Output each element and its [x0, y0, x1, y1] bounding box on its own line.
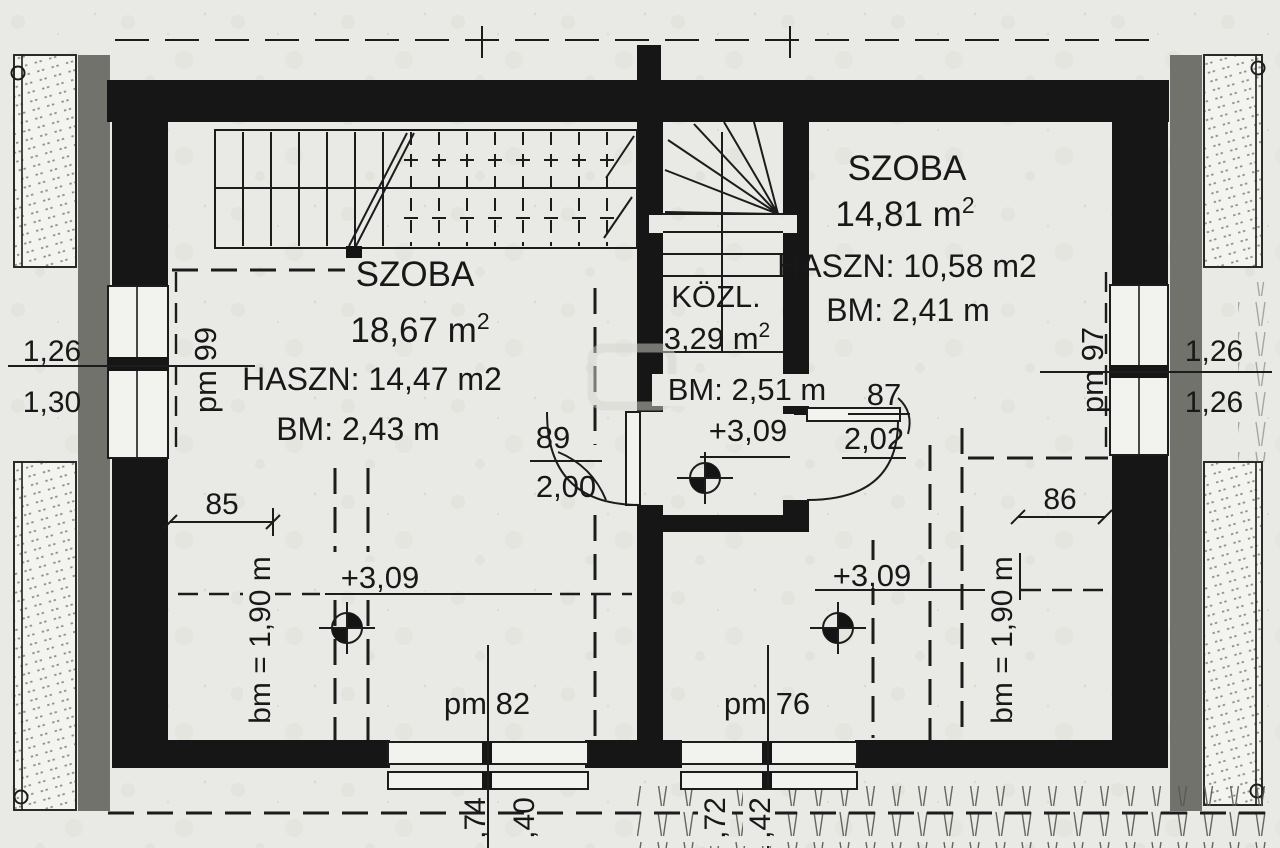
left-door-width: 89	[536, 420, 570, 455]
right-window-bottom-label: pm 76	[724, 686, 810, 721]
floor-plan-drawing: SZOBA 18,67 m2 HASZN: 14,47 m2 BM: 2,43 …	[0, 0, 1280, 848]
corridor-area: 3,29 m2	[664, 319, 770, 356]
right-room-usable-area: HASZN: 10,58 m2	[777, 248, 1037, 284]
corridor-level: +3,09	[709, 413, 787, 448]
right-door-width: 87	[867, 377, 901, 412]
left-window-bottom-label: pm 82	[444, 686, 530, 721]
right-window-side-label: pm 97	[1075, 327, 1110, 413]
left-window-side-label: pm 99	[188, 327, 223, 413]
right-room-name: SZOBA	[848, 149, 967, 188]
window-left-pm99	[108, 286, 168, 458]
left-eave-dim-a: ,74	[459, 797, 492, 839]
left-room-area: 18,67 m2	[350, 308, 489, 350]
left-facade-dim-bottom: 1,30	[23, 386, 81, 419]
window-right-pm97	[1110, 285, 1168, 455]
corridor-name: KÖZL.	[671, 279, 761, 314]
corridor-left-wall	[637, 122, 663, 412]
landing-bottom-wall	[637, 515, 807, 532]
left-room-height: BM: 2,43 m	[276, 411, 440, 447]
right-facade-dim-bottom: 1,26	[1185, 386, 1243, 419]
corridor-height: BM: 2,51 m	[668, 372, 827, 407]
right-room-height: BM: 2,41 m	[826, 292, 990, 328]
left-eave-dim-b: ,40	[508, 797, 541, 839]
left-facade-dim-top: 1,26	[23, 335, 81, 368]
corridor-left-wall	[637, 505, 663, 740]
chimney-stub	[637, 45, 661, 81]
right-facade-dim-top: 1,26	[1185, 335, 1243, 368]
handrail-notch	[649, 215, 663, 233]
left-opening-dim: 85	[205, 488, 238, 521]
left-room-name: SZOBA	[356, 255, 475, 294]
right-opening-dim: 86	[1043, 483, 1076, 516]
floor-plan-page: SZOBA 18,67 m2 HASZN: 14,47 m2 BM: 2,43 …	[0, 0, 1280, 848]
right-eave-dim-a: ,72	[699, 797, 732, 839]
left-knee-height-label: bm = 1,90 m	[244, 556, 277, 724]
left-room-usable-area: HASZN: 14,47 m2	[242, 361, 502, 397]
left-room-level: +3,09	[341, 560, 419, 595]
handrail-notch	[783, 215, 797, 233]
right-door-height: 2,02	[844, 421, 904, 456]
right-knee-height-label: bm = 1,90 m	[986, 556, 1019, 724]
left-door-height: 2,00	[536, 469, 596, 504]
right-room-level: +3,09	[833, 558, 911, 593]
right-eave-dim-b: ,42	[744, 797, 777, 839]
right-room-area: 14,81 m2	[835, 192, 974, 234]
lower-roof-plane	[637, 786, 1280, 848]
